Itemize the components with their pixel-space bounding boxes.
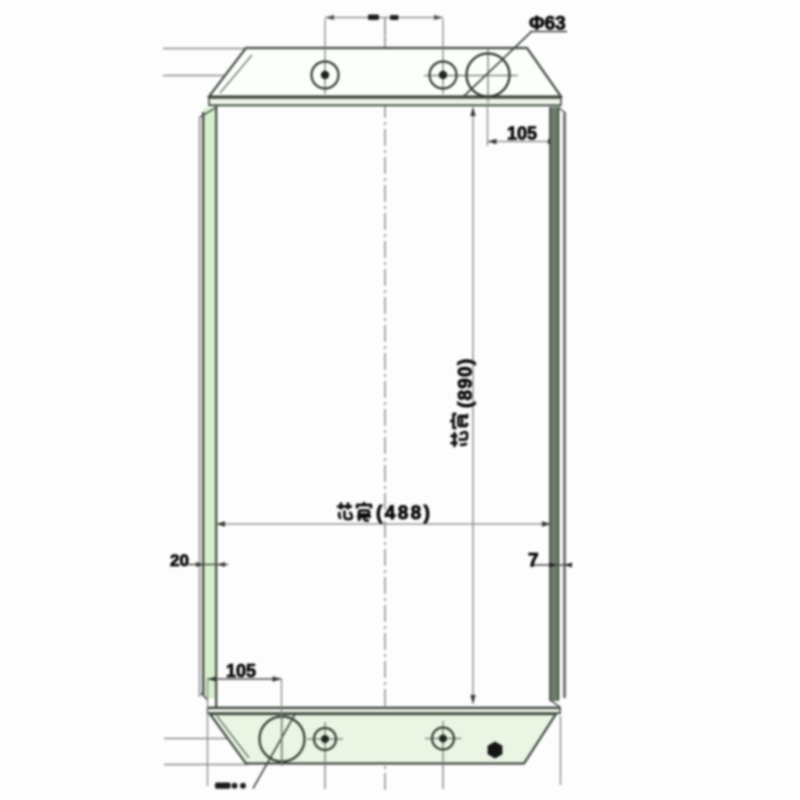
svg-text:105: 105 <box>226 661 256 681</box>
svg-text:7: 7 <box>528 551 539 572</box>
svg-text:(488): (488) <box>376 503 432 524</box>
svg-text:20: 20 <box>170 551 189 570</box>
svg-text:105: 105 <box>507 124 537 144</box>
svg-text:(890): (890) <box>456 358 477 408</box>
svg-text:Φ63: Φ63 <box>529 14 566 35</box>
